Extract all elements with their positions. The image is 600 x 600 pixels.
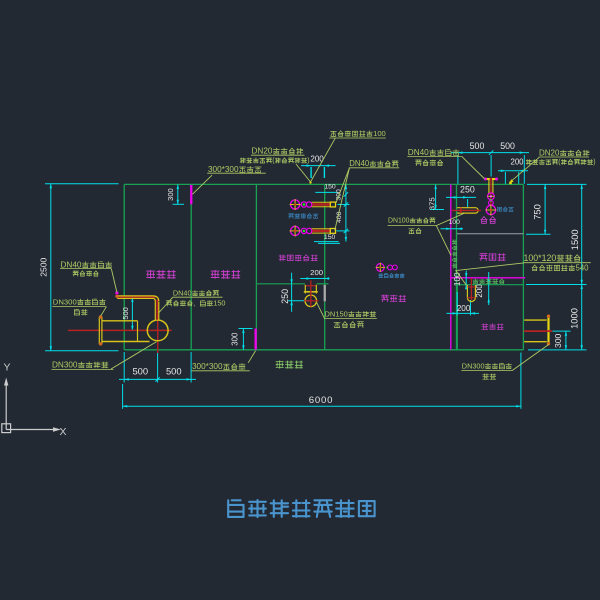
svg-text:DN100: DN100 [388,218,410,225]
svg-text:DN20: DN20 [539,149,560,158]
svg-text:300: 300 [230,332,239,346]
svg-text:250: 250 [280,289,290,304]
svg-text:300*300: 300*300 [208,165,239,174]
svg-text:1000: 1000 [569,308,580,329]
svg-text:,: , [193,299,195,308]
svg-text:250: 250 [460,185,475,195]
svg-text:150: 150 [213,299,225,308]
svg-text:100: 100 [453,272,462,286]
svg-text:Y: Y [4,362,11,374]
svg-text:100: 100 [449,219,461,226]
svg-text:200: 200 [475,284,484,298]
svg-text:DN40: DN40 [173,289,192,298]
svg-text:DN40: DN40 [61,260,82,269]
svg-text:X: X [60,426,67,438]
svg-text:): ) [593,159,595,166]
svg-text:150: 150 [324,234,336,241]
svg-text:1500: 1500 [569,229,580,250]
svg-text:DN20: DN20 [252,147,273,156]
svg-text:200: 200 [510,158,524,167]
svg-text:DN300: DN300 [462,361,485,370]
svg-text:DN300: DN300 [53,297,77,306]
svg-text:2500: 2500 [38,257,48,276]
svg-text:200: 200 [457,304,471,313]
svg-text:DN300: DN300 [52,361,78,370]
svg-text:100*120: 100*120 [524,253,557,263]
svg-text:DN40: DN40 [408,148,429,157]
svg-text:375: 375 [427,197,436,210]
svg-text:500: 500 [132,365,148,376]
svg-text:500: 500 [121,307,130,319]
svg-text:6000: 6000 [309,395,334,406]
svg-text:540: 540 [576,263,590,272]
svg-text:750: 750 [532,204,543,220]
svg-text:150: 150 [324,184,336,191]
svg-text:100: 100 [373,129,386,138]
svg-text:500: 500 [500,141,515,151]
svg-text:500: 500 [166,365,182,376]
svg-text:300: 300 [166,188,175,201]
svg-text:500: 500 [470,141,485,151]
svg-text:DN150: DN150 [325,310,348,319]
svg-text:300: 300 [553,333,563,348]
svg-text:300*300: 300*300 [192,362,223,371]
svg-text:200: 200 [310,268,323,277]
svg-text:): ) [307,158,309,165]
svg-text:DN40: DN40 [349,159,370,168]
